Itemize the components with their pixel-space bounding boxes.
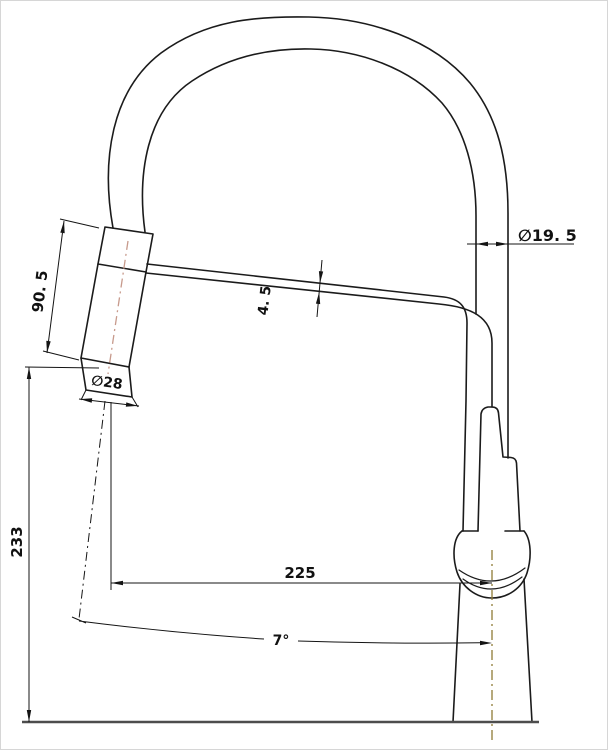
sprayhead-centerline xyxy=(108,241,128,374)
arrowhead xyxy=(60,221,64,233)
hose-top-line xyxy=(147,264,467,531)
drawing-page: ∅19. 5 90. 5 4. 5 ∅28 233 xyxy=(0,0,608,750)
gooseneck-outer-edge xyxy=(108,17,508,458)
arrowhead xyxy=(496,242,508,246)
dim-label-overall-height: 233 xyxy=(8,526,26,557)
arrowhead xyxy=(316,292,320,304)
arrowhead xyxy=(480,641,492,645)
faucet-outline xyxy=(81,17,532,722)
dim-label-sprayhead-diameter: ∅28 xyxy=(90,373,123,393)
dim-label-hose-thickness: 4. 5 xyxy=(255,285,274,316)
dim-overall-height: 233 xyxy=(8,367,99,722)
arrowhead xyxy=(476,242,488,246)
sprayhead-axis-extension xyxy=(79,401,105,619)
dim-sprayhead-length: 90. 5 xyxy=(29,219,99,360)
arrowhead xyxy=(319,271,323,283)
gooseneck-inner-edge xyxy=(142,49,476,314)
arrowhead xyxy=(27,710,31,722)
dim-reach: 225 xyxy=(111,402,492,590)
dim-tilt-angle: 7° xyxy=(72,401,492,649)
dim-label-sprayhead-length: 90. 5 xyxy=(29,269,52,313)
sprayhead-body xyxy=(81,264,146,367)
dim-label-spout-diameter: ∅19. 5 xyxy=(518,226,577,245)
dim-spout-diameter: ∅19. 5 xyxy=(467,226,577,246)
dim-label-angle: 7° xyxy=(273,633,290,649)
dim-label-reach: 225 xyxy=(284,564,315,582)
arrowhead xyxy=(46,341,50,353)
handle-lever xyxy=(478,407,520,531)
arrowhead xyxy=(111,581,123,585)
arrowhead xyxy=(27,367,31,379)
drawing-canvas: ∅19. 5 90. 5 4. 5 ∅28 233 xyxy=(1,1,608,750)
sprayhead-collar xyxy=(98,227,153,272)
